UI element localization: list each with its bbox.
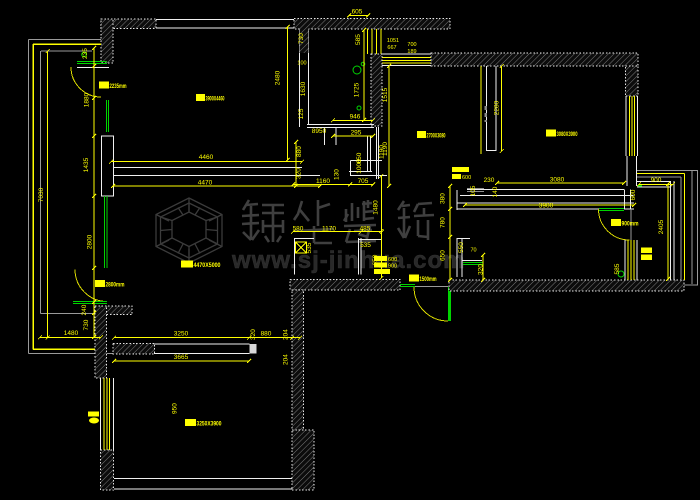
svg-text:3665: 3665: [174, 354, 189, 361]
svg-text:7030: 7030: [38, 187, 45, 202]
svg-text:2700X3080: 2700X3080: [427, 133, 446, 140]
svg-text:295: 295: [351, 130, 362, 137]
svg-text:585: 585: [614, 263, 621, 274]
svg-text:1880: 1880: [84, 92, 91, 107]
svg-text:650: 650: [372, 254, 379, 265]
svg-text:605: 605: [352, 9, 363, 16]
svg-text:2480: 2480: [275, 70, 282, 85]
svg-text:900: 900: [388, 264, 397, 270]
svg-text:580: 580: [293, 226, 304, 233]
svg-text:667: 667: [387, 45, 396, 51]
svg-text:4470X5000: 4470X5000: [194, 262, 221, 269]
svg-text:235: 235: [82, 48, 89, 59]
svg-text:8950: 8950: [312, 128, 327, 135]
svg-text:www.sj-jinhua.com: www.sj-jinhua.com: [231, 247, 465, 274]
svg-text:550: 550: [458, 242, 465, 253]
svg-text:600: 600: [630, 189, 637, 200]
svg-text:4460: 4460: [199, 154, 214, 161]
svg-text:1480: 1480: [373, 200, 380, 215]
svg-text:600: 600: [462, 175, 471, 181]
svg-text:1500mm: 1500mm: [420, 276, 437, 283]
svg-text:1725: 1725: [354, 82, 361, 97]
svg-text:1190: 1190: [382, 142, 389, 156]
svg-text:204: 204: [283, 354, 290, 365]
svg-text:105: 105: [470, 185, 477, 196]
svg-text:1170: 1170: [322, 226, 336, 233]
svg-text:380: 380: [440, 193, 447, 204]
svg-text:320: 320: [296, 168, 303, 179]
svg-text:230: 230: [484, 177, 495, 184]
svg-text:705: 705: [358, 178, 369, 185]
svg-text:880: 880: [261, 331, 272, 338]
svg-text:130: 130: [334, 169, 341, 180]
svg-text:1435: 1435: [83, 157, 90, 172]
svg-text:140: 140: [492, 186, 499, 197]
svg-text:780: 780: [440, 217, 447, 228]
svg-text:125: 125: [298, 108, 305, 119]
svg-text:1160: 1160: [316, 178, 330, 185]
svg-text:730: 730: [83, 319, 90, 330]
svg-text:2405: 2405: [658, 219, 665, 234]
svg-text:3900: 3900: [539, 203, 554, 210]
svg-text:189: 189: [407, 49, 416, 55]
svg-text:2800mm: 2800mm: [106, 282, 125, 289]
svg-text:3250X3900: 3250X3900: [197, 421, 222, 428]
svg-text:320: 320: [478, 264, 485, 275]
svg-text:240: 240: [81, 304, 88, 315]
svg-text:3900X4460: 3900X4460: [206, 96, 225, 103]
svg-text:485: 485: [360, 226, 371, 233]
svg-text:950: 950: [172, 403, 179, 414]
svg-text:100: 100: [297, 61, 306, 67]
svg-text:3250: 3250: [174, 331, 189, 338]
svg-text:1051: 1051: [387, 38, 399, 44]
svg-text:730: 730: [298, 33, 305, 44]
svg-text:70: 70: [470, 248, 476, 254]
svg-text:585: 585: [355, 34, 362, 45]
svg-text:880: 880: [296, 146, 303, 157]
svg-text:900mm: 900mm: [622, 221, 639, 228]
svg-text:650: 650: [440, 250, 447, 261]
svg-text:946: 946: [350, 114, 361, 121]
svg-text:2235mm: 2235mm: [110, 83, 127, 90]
svg-text:2280: 2280: [494, 100, 501, 115]
svg-text:700: 700: [407, 42, 416, 48]
svg-text:535: 535: [306, 242, 313, 253]
svg-text:1515: 1515: [382, 87, 389, 102]
svg-text:1630: 1630: [300, 81, 307, 96]
svg-text:900: 900: [651, 177, 662, 184]
svg-text:600: 600: [388, 257, 397, 263]
svg-text:4470: 4470: [198, 180, 213, 187]
svg-text:1480: 1480: [64, 330, 79, 337]
svg-text:2800: 2800: [87, 234, 94, 249]
svg-text:3080: 3080: [550, 177, 565, 184]
svg-text:1000: 1000: [356, 159, 363, 174]
svg-text:320: 320: [250, 329, 257, 340]
svg-text:3080X3900: 3080X3900: [557, 131, 578, 138]
svg-text:535: 535: [360, 242, 371, 249]
svg-text:204: 204: [283, 329, 290, 340]
